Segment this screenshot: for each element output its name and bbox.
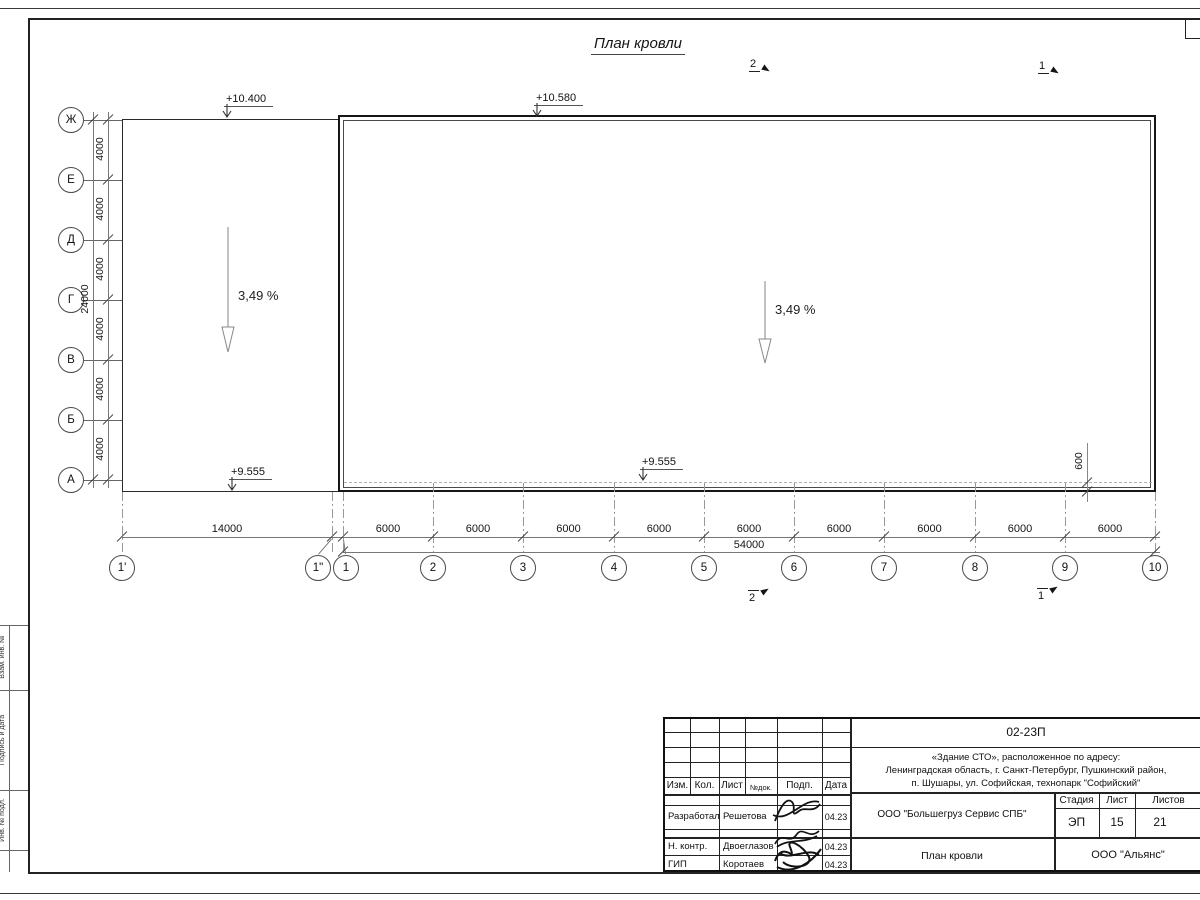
elevation-mark-top-left: +10.400 xyxy=(224,93,273,107)
tb-line xyxy=(665,777,850,778)
building-right-inner-line xyxy=(343,120,1151,488)
axis-bubble-1: 1 xyxy=(333,555,359,581)
tb-project-address: «Здание СТО», расположенное по адресу: Л… xyxy=(853,751,1199,790)
tb-header-izm: Изм. xyxy=(665,780,690,791)
tb-name-developer: Решетова xyxy=(723,811,767,822)
tb-name-gip: Коротаев xyxy=(723,859,764,870)
elevation-arrow-icon xyxy=(226,477,238,492)
section-arrow-icon xyxy=(1049,583,1062,594)
bottom-bay-dim-9: 6000 xyxy=(1080,523,1140,535)
left-dim-line-inner xyxy=(108,112,109,488)
axis-bubble-Д: Д xyxy=(58,227,84,253)
bottom-bay-dim-8: 6000 xyxy=(990,523,1050,535)
signature-developer-icon xyxy=(771,793,823,827)
tb-address-line-2: Ленинградская область, г. Санкт-Петербур… xyxy=(853,764,1199,777)
slope-arrow-right-icon xyxy=(755,281,777,366)
bottom-bay-dim-7: 6000 xyxy=(900,523,960,535)
section-mark-bottom-2: 2 xyxy=(748,590,759,604)
slope-label-right: 3,49 % xyxy=(775,302,815,317)
axis-bubble-1": 1" xyxy=(305,555,331,581)
tb-line xyxy=(850,719,852,870)
tb-header-kol: Кол. xyxy=(690,780,719,791)
section-mark-top-1: 1 xyxy=(1038,60,1049,74)
tb-line xyxy=(1054,808,1200,809)
tb-header-data: Дата xyxy=(822,780,850,791)
tb-date-developer: 04.23 xyxy=(822,812,850,822)
elevation-mark-bottom-left: +9.555 xyxy=(229,466,272,480)
grid-line-bottom xyxy=(433,483,434,553)
slope-arrow-left-icon xyxy=(218,227,240,355)
axis-bubble-7: 7 xyxy=(871,555,897,581)
tb-stage-value: ЭП xyxy=(1054,815,1099,829)
tb-header-podp: Подп. xyxy=(777,780,822,791)
tb-doc-code: 02-23П xyxy=(850,725,1200,739)
tb-role-gip: ГИП xyxy=(668,859,687,870)
tb-sheet-title: План кровли xyxy=(850,850,1054,862)
grid-line-bottom xyxy=(343,492,344,553)
plan-title: План кровли xyxy=(563,35,713,52)
axis-leader-1quote xyxy=(318,539,332,555)
tb-line xyxy=(665,747,850,748)
grid-line-bottom xyxy=(884,483,885,553)
tb-role-developer: Разработал xyxy=(668,811,720,822)
bottom-bay-dim-5: 6000 xyxy=(719,523,779,535)
left-bay-dim-4: 4000 xyxy=(94,367,106,411)
section-mark-top-2: 2 xyxy=(749,58,760,72)
grid-line-bottom xyxy=(523,483,524,553)
bottom-bay-dim-4: 6000 xyxy=(629,523,689,535)
tb-line xyxy=(850,747,1200,748)
tb-sheet-label: Лист xyxy=(1099,795,1135,806)
axis-line-Д xyxy=(84,240,122,241)
bottom-bay-dim-3: 6000 xyxy=(539,523,599,535)
grid-line-bottom xyxy=(614,483,615,553)
left-bay-dim-1: 4000 xyxy=(94,187,106,231)
tb-line xyxy=(665,837,1200,839)
bottom-dim-line-1 xyxy=(122,537,1160,538)
axis-bubble-Б: Б xyxy=(58,407,84,433)
tb-stage-label: Стадия xyxy=(1054,795,1099,806)
elevation-arrow-icon xyxy=(531,103,543,118)
grid-line-bottom xyxy=(975,483,976,553)
axis-line-В xyxy=(84,360,122,361)
section-arrow-icon xyxy=(1050,67,1063,78)
tb-line xyxy=(665,732,850,733)
axis-bubble-В: В xyxy=(58,347,84,373)
grid-line-bottom xyxy=(122,492,123,553)
left-total-dim: 24000 xyxy=(79,277,91,321)
tb-sheets-total: 21 xyxy=(1135,815,1185,829)
axis-bubble-Е: Е xyxy=(58,167,84,193)
tb-address-line-3: п. Шушары, ул. Софийская, технопарк "Соф… xyxy=(853,777,1199,790)
axis-bubble-Ж: Ж xyxy=(58,107,84,133)
tb-sheet-number: 15 xyxy=(1099,815,1135,829)
axis-bubble-А: А xyxy=(58,467,84,493)
drawing-sheet: Взам. инв. № Подпись и дата Инв. № подл.… xyxy=(0,0,1200,900)
grid-line-bottom xyxy=(332,492,333,553)
tb-address-line-1: «Здание СТО», расположенное по адресу: xyxy=(853,751,1199,764)
bottom-total-dim: 54000 xyxy=(719,539,779,551)
elevation-arrow-icon xyxy=(637,467,649,482)
bottom-bay-dim-2: 6000 xyxy=(448,523,508,535)
tb-header-ndok: №док. xyxy=(745,783,777,792)
tb-organization: ООО "Большегруз Сервис СПБ" xyxy=(850,809,1054,820)
bottom-dim-line-2 xyxy=(343,552,1160,553)
tb-line xyxy=(665,762,850,763)
section-mark-bottom-1: 1 xyxy=(1037,588,1048,602)
grid-line-bottom xyxy=(704,483,705,553)
axis-bubble-8: 8 xyxy=(962,555,988,581)
left-bay-dim-0: 4000 xyxy=(94,127,106,171)
axis-line-Е xyxy=(84,180,122,181)
elevation-arrow-icon xyxy=(221,104,233,119)
parapet-dim-600: 600 xyxy=(1073,439,1085,483)
axis-line-Б xyxy=(84,420,122,421)
elevation-mark-top-right: +10.580 xyxy=(534,92,583,106)
bottom-bay-dim-1: 6000 xyxy=(358,523,418,535)
tb-role-ncontrol: Н. контр. xyxy=(668,841,707,852)
elevation-mark-bottom-right: +9.555 xyxy=(640,456,683,470)
grid-line-bottom xyxy=(1065,483,1066,553)
signature-gip-icon xyxy=(769,837,827,871)
section-arrow-icon xyxy=(760,585,773,596)
left-bay-dim-2: 4000 xyxy=(94,247,106,291)
axis-bubble-6: 6 xyxy=(781,555,807,581)
title-block: 02-23П «Здание СТО», расположенное по ад… xyxy=(663,717,1200,872)
grid-line-bottom xyxy=(1155,492,1156,553)
axis-bubble-5: 5 xyxy=(691,555,717,581)
tb-company: ООО "Альянс" xyxy=(1054,849,1200,861)
axis-bubble-10: 10 xyxy=(1142,555,1168,581)
left-bay-dim-3: 4000 xyxy=(94,307,106,351)
bottom-first-dim: 14000 xyxy=(197,523,257,535)
axis-bubble-4: 4 xyxy=(601,555,627,581)
grid-line-bottom xyxy=(794,483,795,553)
tb-line xyxy=(665,829,850,830)
slope-label-left: 3,49 % xyxy=(238,288,278,303)
bottom-bay-dim-6: 6000 xyxy=(809,523,869,535)
tb-line xyxy=(850,792,1200,794)
axis-bubble-1': 1' xyxy=(109,555,135,581)
roof-dashed-line xyxy=(344,482,1152,483)
axis-bubble-3: 3 xyxy=(510,555,536,581)
tb-sheets-label: Листов xyxy=(1135,795,1200,806)
axis-bubble-9: 9 xyxy=(1052,555,1078,581)
tb-name-ncontrol: Двоеглазов xyxy=(723,841,774,852)
axis-bubble-2: 2 xyxy=(420,555,446,581)
tb-header-list: Лист xyxy=(719,780,745,791)
parapet-ext-line xyxy=(1087,443,1088,502)
section-arrow-icon xyxy=(761,65,774,76)
left-bay-dim-5: 4000 xyxy=(94,427,106,471)
